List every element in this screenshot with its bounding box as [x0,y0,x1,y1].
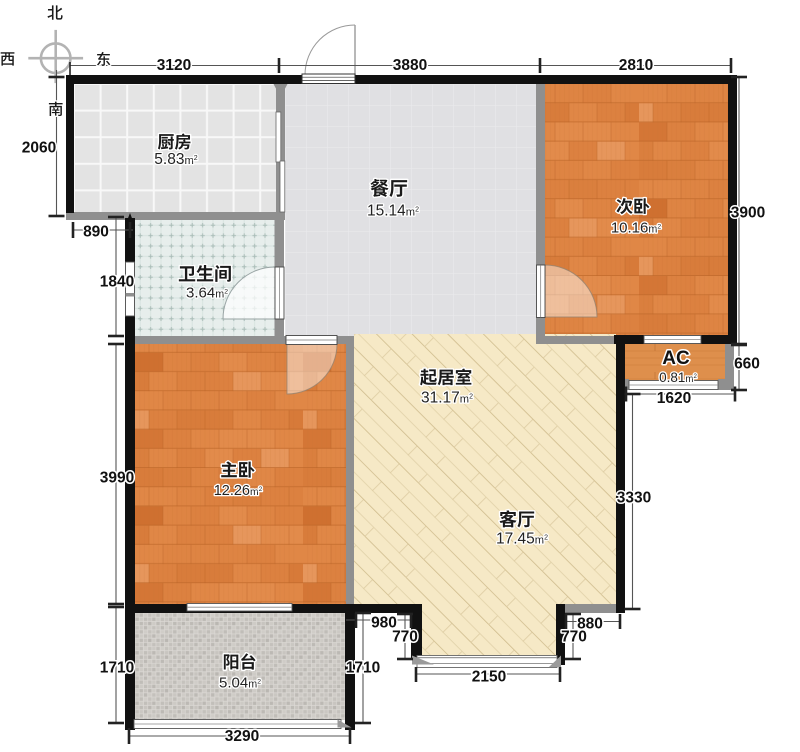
svg-text:1620: 1620 [657,390,691,407]
svg-text:3290: 3290 [225,728,259,745]
svg-text:660: 660 [734,356,760,373]
svg-text:3330: 3330 [617,490,651,507]
svg-text:3990: 3990 [100,470,134,487]
svg-text:3900: 3900 [731,205,765,222]
svg-text:770: 770 [561,629,587,646]
svg-text:3120: 3120 [157,57,191,74]
svg-text:770: 770 [392,629,418,646]
svg-text:890: 890 [83,224,109,241]
svg-text:1840: 1840 [100,274,134,291]
svg-text:AC: AC [662,348,690,369]
svg-text:1710: 1710 [346,660,380,677]
svg-text:2060: 2060 [22,140,56,157]
svg-text:3880: 3880 [393,57,427,74]
svg-text:2150: 2150 [472,669,506,686]
svg-text:1710: 1710 [100,660,134,677]
svg-text:2810: 2810 [619,57,653,74]
